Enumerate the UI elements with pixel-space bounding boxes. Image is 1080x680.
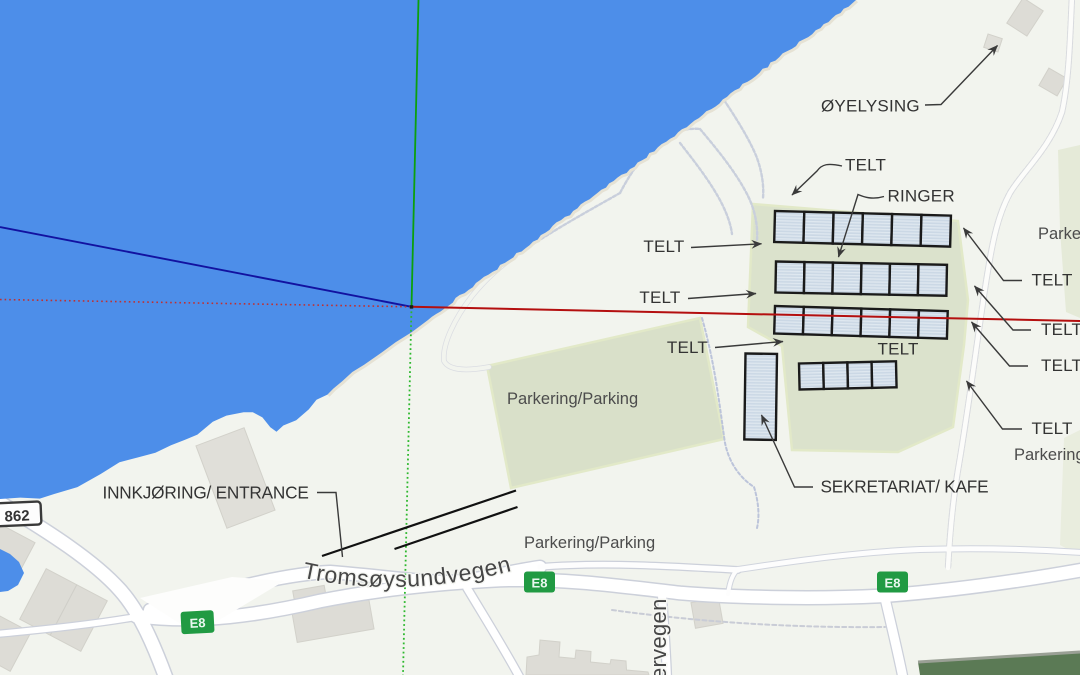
svg-text:ervegen: ervegen <box>646 598 671 675</box>
svg-text:INNKJØRING/ ENTRANCE: INNKJØRING/ ENTRANCE <box>103 483 309 503</box>
svg-text:TELT: TELT <box>845 156 886 175</box>
svg-text:TELT: TELT <box>643 237 684 256</box>
svg-text:862: 862 <box>4 507 30 525</box>
svg-text:Parkering/Parking: Parkering/Parking <box>507 390 638 408</box>
svg-text:E8: E8 <box>885 576 901 591</box>
svg-text:TELT: TELT <box>639 288 680 307</box>
svg-text:RINGER: RINGER <box>888 187 955 206</box>
svg-text:TELT: TELT <box>1041 320 1080 339</box>
svg-text:TELT: TELT <box>1032 271 1073 290</box>
svg-text:ØYELYSING: ØYELYSING <box>821 97 920 116</box>
svg-text:TELT: TELT <box>1032 419 1073 438</box>
svg-text:Parkering/Parking: Parkering/Parking <box>524 534 655 552</box>
svg-text:SEKRETARIAT/ KAFE: SEKRETARIAT/ KAFE <box>821 477 989 497</box>
svg-text:Parkeri: Parkeri <box>1038 225 1080 243</box>
svg-text:E8: E8 <box>189 615 206 631</box>
svg-text:TELT: TELT <box>667 338 708 357</box>
svg-text:TELT: TELT <box>878 340 919 359</box>
svg-text:TELT: TELT <box>1041 356 1080 375</box>
svg-text:Parkering: Parkering <box>1014 446 1080 464</box>
svg-text:E8: E8 <box>532 576 548 591</box>
